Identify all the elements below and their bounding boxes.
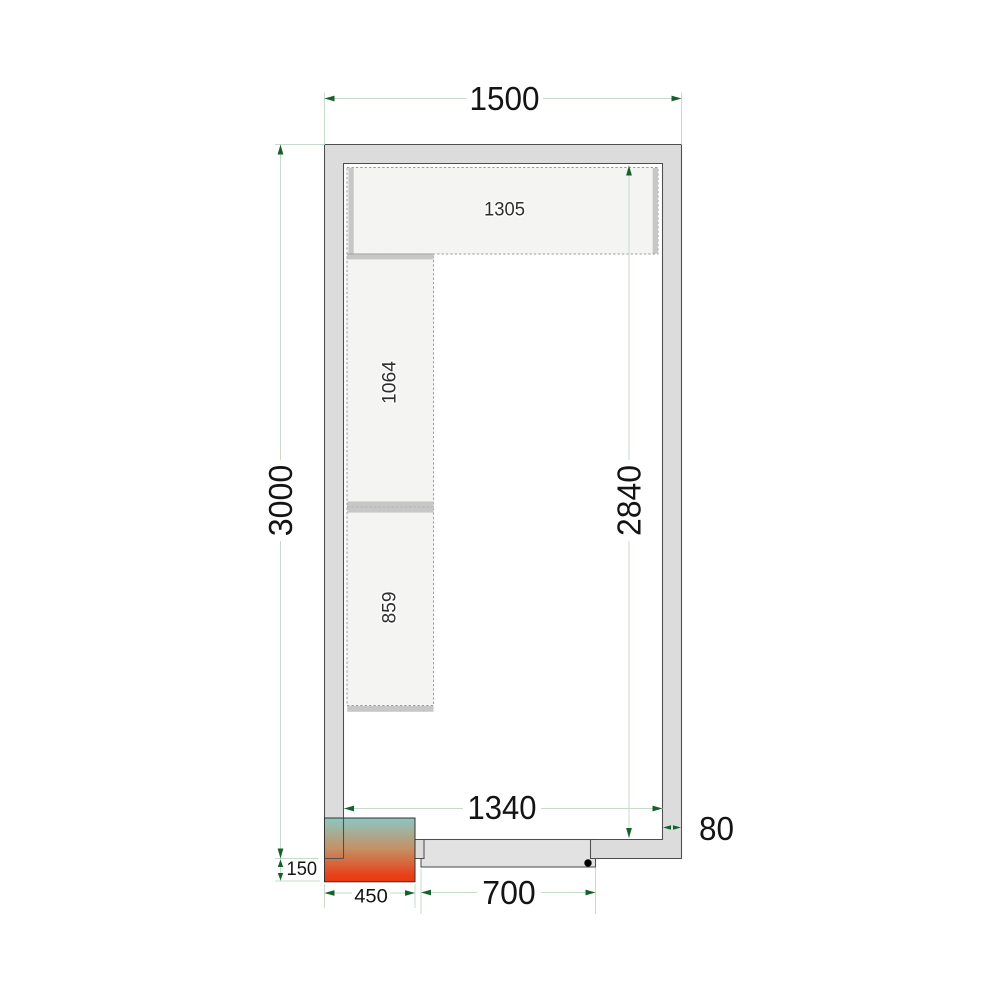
svg-text:1305: 1305 xyxy=(484,199,525,221)
svg-text:1340: 1340 xyxy=(468,789,537,826)
svg-text:859: 859 xyxy=(379,592,401,624)
svg-text:3000: 3000 xyxy=(262,465,299,537)
svg-text:1500: 1500 xyxy=(470,80,540,117)
svg-text:150: 150 xyxy=(287,858,318,880)
svg-text:80: 80 xyxy=(699,810,734,847)
svg-text:2840: 2840 xyxy=(611,465,648,536)
svg-text:700: 700 xyxy=(482,874,536,911)
svg-text:450: 450 xyxy=(354,886,388,908)
svg-text:1064: 1064 xyxy=(379,361,401,404)
